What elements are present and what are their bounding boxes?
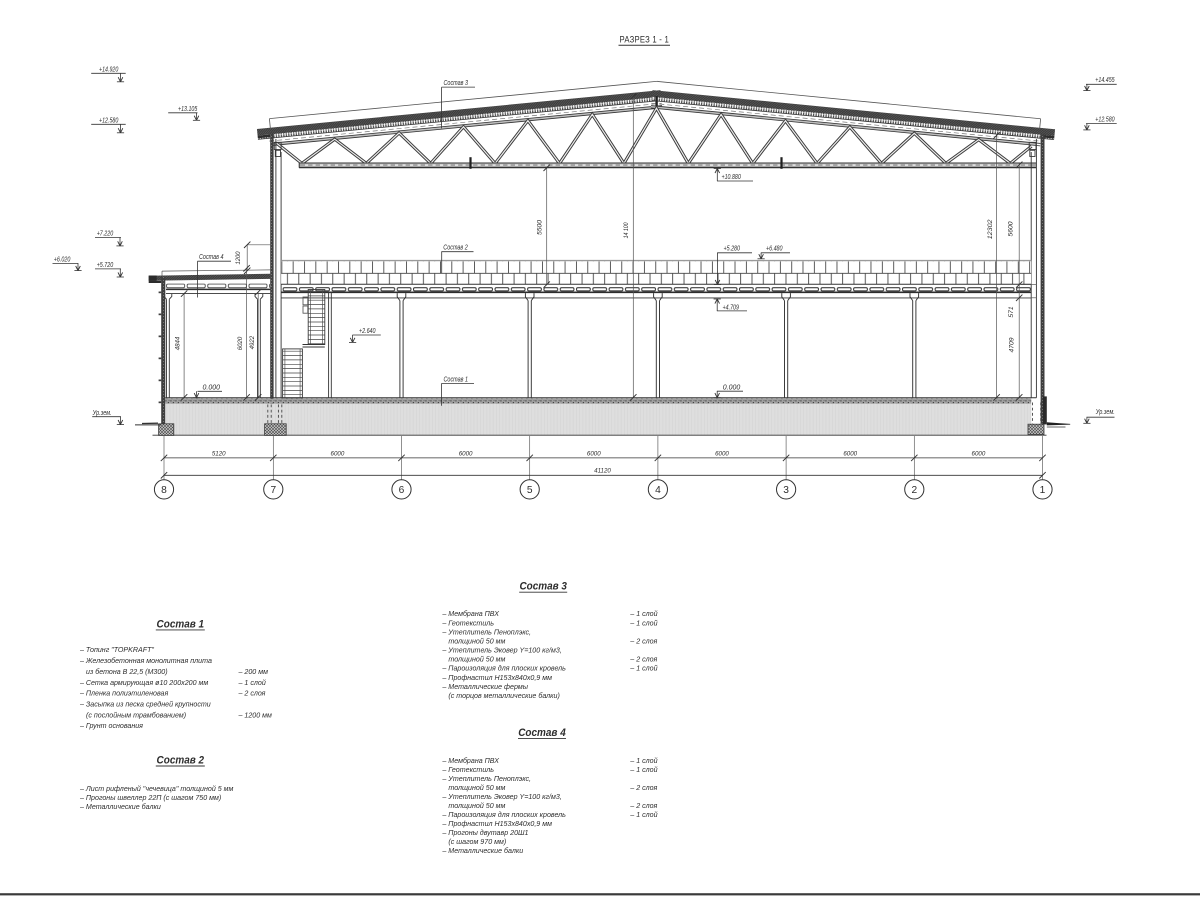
svg-text:– Мембрана ПВХ: – Мембрана ПВХ (441, 610, 499, 618)
svg-text:толщиной 50 мм: толщиной 50 мм (448, 656, 505, 664)
svg-text:Состав 2: Состав 2 (443, 245, 468, 252)
svg-text:РАЗРЕЗ 1 - 1: РАЗРЕЗ 1 - 1 (620, 35, 670, 46)
svg-text:– Металлические балки: – Металлические балки (441, 847, 523, 855)
svg-text:– 1 слой: – 1 слой (629, 619, 657, 627)
svg-text:6000: 6000 (715, 450, 729, 457)
svg-text:8: 8 (161, 485, 167, 496)
svg-text:– Металлические фермы: – Металлические фермы (441, 683, 528, 691)
svg-text:+5.280: +5.280 (724, 246, 741, 253)
svg-text:– Засыпка из песка средней кру: – Засыпка из песка средней крупности (79, 701, 211, 709)
svg-text:+12.580: +12.580 (1095, 117, 1114, 124)
svg-text:– 2 слоя: – 2 слоя (629, 638, 657, 646)
svg-text:– 1 слой: – 1 слой (629, 610, 657, 618)
svg-text:3: 3 (783, 485, 789, 496)
svg-text:5500: 5500 (537, 219, 544, 235)
svg-text:толщиной 50 мм: толщиной 50 мм (448, 802, 505, 810)
svg-text:4: 4 (655, 485, 661, 496)
svg-text:6000: 6000 (843, 450, 857, 457)
svg-text:6000: 6000 (459, 450, 473, 457)
svg-text:+10.880: +10.880 (722, 174, 741, 181)
svg-text:из бетона В 22,5 (М300): из бетона В 22,5 (М300) (86, 668, 168, 676)
svg-text:– Металлические балки: – Металлические балки (79, 803, 161, 811)
svg-text:Состав 2: Состав 2 (157, 754, 205, 766)
svg-text:0.000: 0.000 (723, 384, 741, 391)
svg-text:1200: 1200 (235, 251, 242, 265)
svg-text:+14.455: +14.455 (1095, 77, 1114, 84)
svg-text:– 1 слой: – 1 слой (238, 679, 266, 687)
svg-text:– 2 слоя: – 2 слоя (238, 690, 266, 698)
svg-text:– Сетка армирующая ø10 200х200: – Сетка армирующая ø10 200х200 мм (79, 679, 208, 687)
svg-text:– 1 слой: – 1 слой (629, 757, 657, 765)
svg-text:5: 5 (527, 485, 533, 496)
svg-text:4844: 4844 (175, 336, 182, 350)
svg-text:– Пароизоляция для плоских кро: – Пароизоляция для плоских кровель (441, 665, 566, 673)
svg-text:– 200 мм: – 200 мм (238, 668, 269, 676)
svg-text:+6.480: +6.480 (766, 246, 783, 253)
svg-text:Состав 1: Состав 1 (444, 376, 469, 383)
svg-text:– Геотекстиль: – Геотекстиль (441, 766, 494, 774)
svg-text:+5.720: +5.720 (97, 262, 114, 269)
svg-text:6000: 6000 (331, 450, 345, 457)
svg-text:– Топинг "TOPKRAFT": – Топинг "TOPKRAFT" (79, 646, 154, 654)
svg-text:4922: 4922 (249, 335, 256, 349)
svg-text:6: 6 (399, 485, 405, 496)
svg-text:– 2 слоя: – 2 слоя (629, 802, 657, 810)
svg-text:Состав 1: Состав 1 (157, 618, 205, 630)
svg-text:– Утеплитель Эковер Y=100 кг/м: – Утеплитель Эковер Y=100 кг/м3, (441, 793, 561, 801)
svg-text:+2.640: +2.640 (359, 328, 376, 335)
svg-text:– Пленка полиэтиленовая: – Пленка полиэтиленовая (79, 690, 168, 698)
svg-text:+4.709: +4.709 (723, 304, 740, 311)
svg-text:– Прогоны швеллер 22П (с шагом: – Прогоны швеллер 22П (с шагом 750 мм) (79, 794, 221, 802)
svg-text:+6.020: +6.020 (54, 256, 71, 263)
svg-text:+14.920: +14.920 (99, 66, 118, 73)
svg-text:+13.105: +13.105 (178, 106, 197, 113)
svg-text:Состав 3: Состав 3 (519, 581, 567, 593)
svg-text:4709: 4709 (1008, 337, 1015, 353)
svg-text:толщиной 50 мм: толщиной 50 мм (448, 784, 505, 792)
svg-text:Состав 4: Состав 4 (518, 727, 566, 739)
svg-text:(с шагом 970 мм): (с шагом 970 мм) (448, 838, 506, 846)
svg-text:5120: 5120 (212, 450, 226, 457)
svg-text:– Утеплитель Пеноплэкс,: – Утеплитель Пеноплэкс, (441, 775, 531, 783)
svg-text:– 1200 мм: – 1200 мм (238, 711, 273, 719)
svg-text:– 2 слоя: – 2 слоя (629, 656, 657, 664)
svg-text:5600: 5600 (1008, 221, 1015, 237)
svg-text:Состав 3: Состав 3 (444, 80, 469, 87)
svg-text:– 1 слой: – 1 слой (629, 766, 657, 774)
svg-text:41120: 41120 (594, 468, 611, 475)
svg-text:– Грунт основания: – Грунт основания (79, 722, 143, 730)
svg-text:– 2 слоя: – 2 слоя (629, 784, 657, 792)
svg-text:6020: 6020 (237, 336, 244, 350)
svg-text:12302: 12302 (987, 219, 994, 239)
svg-text:– Утеплитель Пеноплэкс,: – Утеплитель Пеноплэкс, (441, 628, 531, 636)
svg-text:+7.220: +7.220 (97, 231, 114, 238)
svg-text:(с послойным трамбованием): (с послойным трамбованием) (86, 711, 186, 719)
svg-text:– Утеплитель Эковер Y=100 кг/м: – Утеплитель Эковер Y=100 кг/м3, (441, 647, 561, 655)
svg-text:– Профнастил Н153х840х0,9 мм: – Профнастил Н153х840х0,9 мм (441, 674, 552, 682)
svg-text:– Железобетонная монолитная п: – Железобетонная монолитная плита (79, 657, 212, 665)
svg-text:6000: 6000 (587, 450, 601, 457)
svg-text:– Профнастил Н153х840х0,9 мм: – Профнастил Н153х840х0,9 мм (441, 820, 552, 828)
svg-text:– Прогоны двутавр 20Ш1: – Прогоны двутавр 20Ш1 (441, 829, 528, 837)
svg-text:1: 1 (1040, 485, 1046, 496)
svg-text:– Пароизоляция для плоских кро: – Пароизоляция для плоских кровель (441, 811, 566, 819)
svg-text:(с торцов металлические балки): (с торцов металлические балки) (448, 692, 559, 700)
svg-text:– Лист рифленый "чечевица" тол: – Лист рифленый "чечевица" толщиной 5 мм (79, 785, 234, 793)
svg-text:– 1 слой: – 1 слой (629, 665, 657, 673)
svg-text:– 1 слой: – 1 слой (629, 811, 657, 819)
svg-text:– Мембрана ПВХ: – Мембрана ПВХ (441, 757, 499, 765)
svg-text:+12.580: +12.580 (99, 117, 118, 124)
svg-text:– Геотекстиль: – Геотекстиль (441, 619, 494, 627)
svg-text:толщиной 50 мм: толщиной 50 мм (448, 638, 505, 646)
svg-text:Состав 4: Состав 4 (199, 254, 224, 261)
svg-text:7: 7 (270, 485, 276, 496)
svg-text:Ур.зем.: Ур.зем. (1095, 409, 1115, 416)
svg-text:Ур.зем.: Ур.зем. (92, 410, 112, 417)
svg-text:14 100: 14 100 (623, 222, 630, 238)
svg-text:2: 2 (911, 485, 917, 496)
svg-text:0.000: 0.000 (203, 384, 221, 391)
svg-text:6000: 6000 (972, 450, 986, 457)
svg-text:571: 571 (1008, 306, 1015, 317)
